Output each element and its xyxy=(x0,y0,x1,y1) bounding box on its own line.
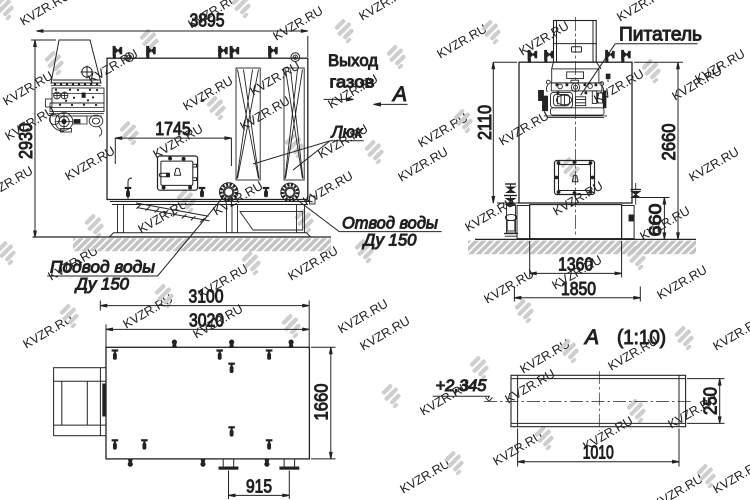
svg-text:Выход: Выход xyxy=(328,51,378,70)
svg-text:250: 250 xyxy=(700,387,721,415)
svg-text:1745: 1745 xyxy=(155,118,191,139)
svg-text:915: 915 xyxy=(246,475,272,496)
svg-text:Ду 150: Ду 150 xyxy=(74,275,130,294)
svg-text:KVZR.RU: KVZR.RU xyxy=(517,19,572,59)
svg-text:А: А xyxy=(391,83,407,106)
svg-text:KVZR.RU: KVZR.RU xyxy=(211,179,266,219)
svg-text:KVZR.RU: KVZR.RU xyxy=(687,145,742,185)
svg-text:KVZR.RU: KVZR.RU xyxy=(248,59,303,99)
svg-text:газов: газов xyxy=(330,73,375,92)
svg-text:KVZR.RU: KVZR.RU xyxy=(301,169,356,209)
svg-text:KVZR.RU: KVZR.RU xyxy=(592,67,647,107)
svg-text:KVZR.RU: KVZR.RU xyxy=(655,263,710,303)
svg-text:Питатель: Питатель xyxy=(619,24,702,45)
svg-text:KVZR.RU: KVZR.RU xyxy=(711,314,750,354)
svg-text:KVZR.RU: KVZR.RU xyxy=(711,457,750,497)
svg-text:1850: 1850 xyxy=(561,278,596,299)
svg-text:+2,345: +2,345 xyxy=(436,376,488,395)
svg-text:KVZR.RU: KVZR.RU xyxy=(398,457,453,497)
svg-text:KVZR.RU: KVZR.RU xyxy=(435,22,490,62)
svg-text:KVZR.RU: KVZR.RU xyxy=(181,74,236,114)
svg-text:1660: 1660 xyxy=(311,384,332,421)
svg-text:KVZR.RU: KVZR.RU xyxy=(482,267,537,307)
svg-text:660: 660 xyxy=(645,203,665,236)
svg-text:KVZR.RU: KVZR.RU xyxy=(357,0,412,23)
svg-text:KVZR.RU: KVZR.RU xyxy=(1,69,56,109)
svg-text:KVZR.RU: KVZR.RU xyxy=(497,109,552,149)
svg-text:3020: 3020 xyxy=(189,309,224,330)
svg-text:KVZR.RU: KVZR.RU xyxy=(396,145,451,185)
svg-text:(1:10): (1:10) xyxy=(617,326,666,349)
svg-text:2660: 2660 xyxy=(658,124,679,161)
svg-text:2110: 2110 xyxy=(474,105,495,140)
svg-text:Люк: Люк xyxy=(331,123,364,142)
svg-text:KVZR.RU: KVZR.RU xyxy=(63,144,118,184)
svg-text:3100: 3100 xyxy=(189,286,224,307)
svg-text:3895: 3895 xyxy=(190,10,225,31)
svg-text:А: А xyxy=(583,326,599,349)
svg-text:1010: 1010 xyxy=(583,442,614,463)
svg-text:1360: 1360 xyxy=(558,254,593,275)
svg-text:KVZR.RU: KVZR.RU xyxy=(615,0,670,24)
svg-text:2930: 2930 xyxy=(15,123,36,159)
svg-text:KVZR.RU: KVZR.RU xyxy=(0,164,35,204)
svg-text:Ду 150: Ду 150 xyxy=(362,231,418,250)
svg-text:KVZR.RU: KVZR.RU xyxy=(18,0,73,28)
svg-text:KVZR.RU: KVZR.RU xyxy=(651,472,706,500)
svg-text:KVZR.RU: KVZR.RU xyxy=(271,4,326,44)
